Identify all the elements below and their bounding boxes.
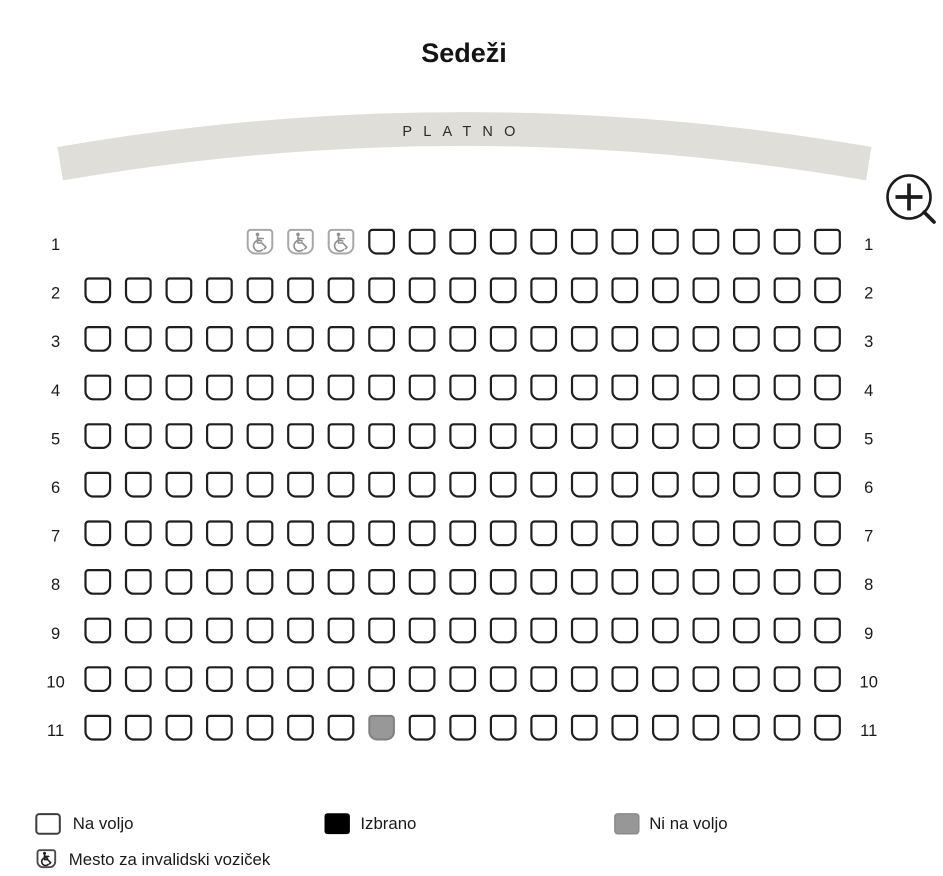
svg-text:5: 5 [51, 430, 60, 448]
svg-text:1: 1 [51, 236, 60, 254]
svg-text:Na voljo: Na voljo [73, 814, 134, 833]
svg-text:3: 3 [864, 333, 873, 351]
svg-text:2: 2 [51, 285, 60, 303]
svg-text:Ni na voljo: Ni na voljo [649, 814, 727, 833]
svg-text:3: 3 [51, 333, 60, 351]
svg-text:7: 7 [51, 528, 60, 546]
svg-text:2: 2 [864, 285, 873, 303]
svg-text:11: 11 [47, 722, 64, 740]
svg-text:5: 5 [864, 430, 873, 448]
svg-text:10: 10 [46, 673, 64, 691]
svg-text:9: 9 [51, 625, 60, 643]
svg-text:Mesto za invalidski voziček: Mesto za invalidski voziček [69, 850, 271, 869]
svg-text:6: 6 [864, 479, 873, 497]
svg-text:4: 4 [864, 382, 873, 400]
svg-text:10: 10 [860, 673, 878, 691]
svg-text:Sedeži: Sedeži [421, 38, 507, 68]
svg-text:1: 1 [864, 236, 873, 254]
svg-text:6: 6 [51, 479, 60, 497]
svg-text:4: 4 [51, 382, 60, 400]
svg-text:PLATNO: PLATNO [402, 124, 526, 140]
svg-text:8: 8 [864, 576, 873, 594]
svg-text:7: 7 [864, 528, 873, 546]
svg-text:Izbrano: Izbrano [360, 814, 416, 833]
svg-text:11: 11 [860, 722, 877, 740]
svg-text:9: 9 [864, 625, 873, 643]
svg-text:8: 8 [51, 576, 60, 594]
